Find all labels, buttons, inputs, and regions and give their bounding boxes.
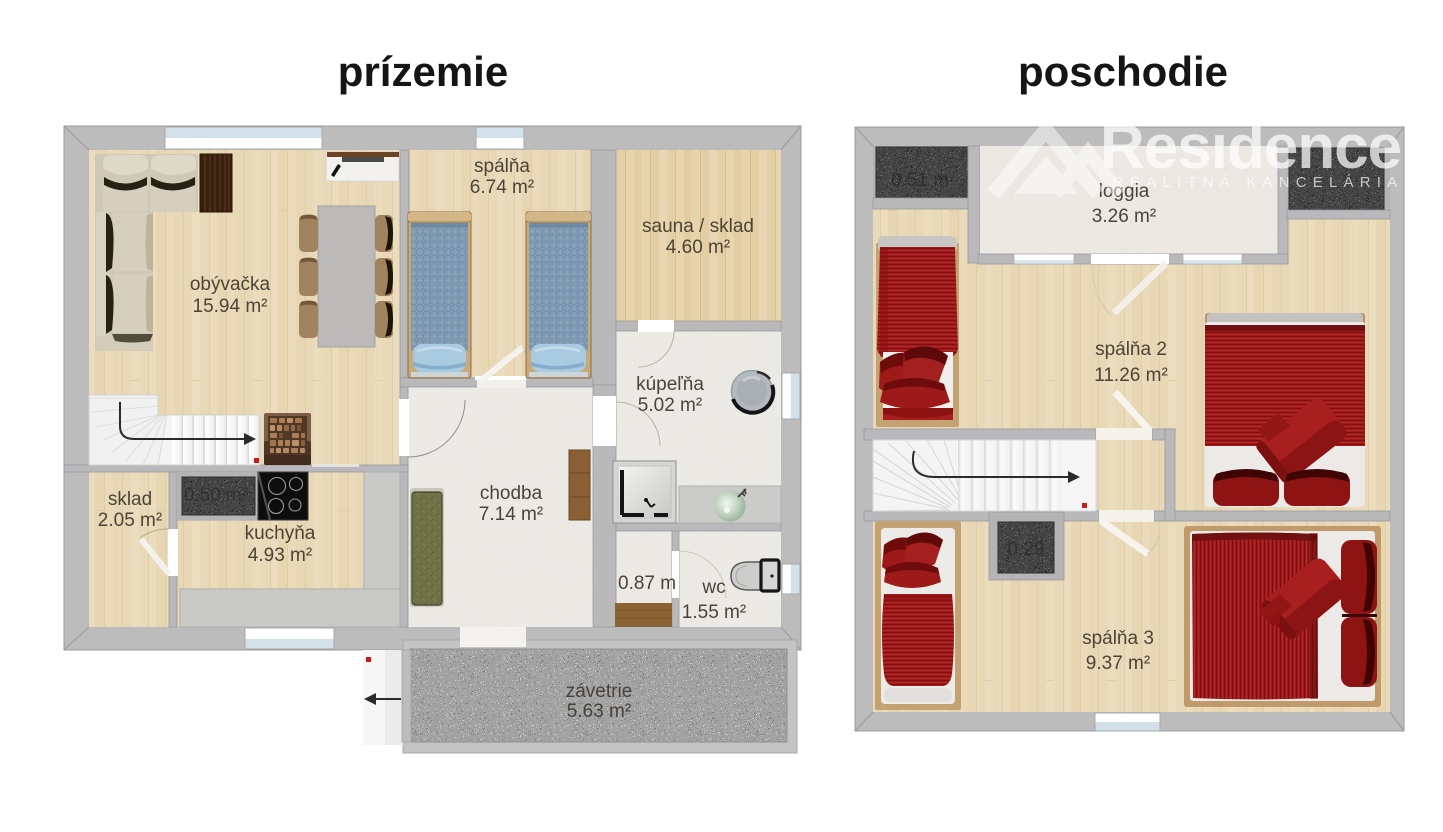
svg-text:wc: wc — [701, 577, 725, 598]
svg-text:sauna / sklad: sauna / sklad — [642, 216, 754, 237]
svg-text:závetrie: závetrie — [566, 681, 633, 702]
svg-text:4.60 m²: 4.60 m² — [666, 237, 730, 258]
svg-text:5.63 m²: 5.63 m² — [567, 701, 631, 722]
svg-text:7.14 m²: 7.14 m² — [479, 504, 543, 525]
svg-text:Resıdence: Resıdence — [1100, 113, 1401, 182]
svg-text:1.55 m²: 1.55 m² — [682, 602, 746, 623]
svg-text:9.37 m²: 9.37 m² — [1086, 653, 1150, 674]
svg-text:0.51 m: 0.51 m — [891, 170, 949, 191]
svg-text:REALITNÁ KANCELÁRIA: REALITNÁ KANCELÁRIA — [1113, 174, 1403, 191]
svg-text:prízemie: prízemie — [338, 48, 508, 95]
svg-text:spálňa: spálňa — [474, 156, 530, 177]
svg-text:3.26 m²: 3.26 m² — [1092, 206, 1156, 227]
svg-text:spálňa 3: spálňa 3 — [1082, 628, 1154, 649]
svg-text:2.05 m²: 2.05 m² — [98, 510, 162, 531]
svg-text:0.87 m: 0.87 m — [618, 573, 676, 594]
svg-text:poschodie: poschodie — [1018, 48, 1228, 95]
svg-text:15.94 m²: 15.94 m² — [193, 296, 268, 317]
svg-text:0.50 m²: 0.50 m² — [184, 485, 248, 506]
svg-text:kuchyňa: kuchyňa — [245, 523, 316, 544]
svg-text:6.74 m²: 6.74 m² — [470, 177, 534, 198]
svg-text:obývačka: obývačka — [190, 274, 271, 295]
svg-text:spálňa 2: spálňa 2 — [1095, 339, 1167, 360]
svg-text:0.29: 0.29 — [1008, 539, 1045, 560]
svg-text:4.93 m²: 4.93 m² — [248, 545, 312, 566]
svg-text:sklad: sklad — [108, 489, 152, 510]
svg-text:chodba: chodba — [480, 483, 543, 504]
svg-text:5.02 m²: 5.02 m² — [638, 395, 702, 416]
svg-text:kúpeľňa: kúpeľňa — [636, 374, 704, 395]
svg-text:11.26 m²: 11.26 m² — [1094, 365, 1168, 386]
